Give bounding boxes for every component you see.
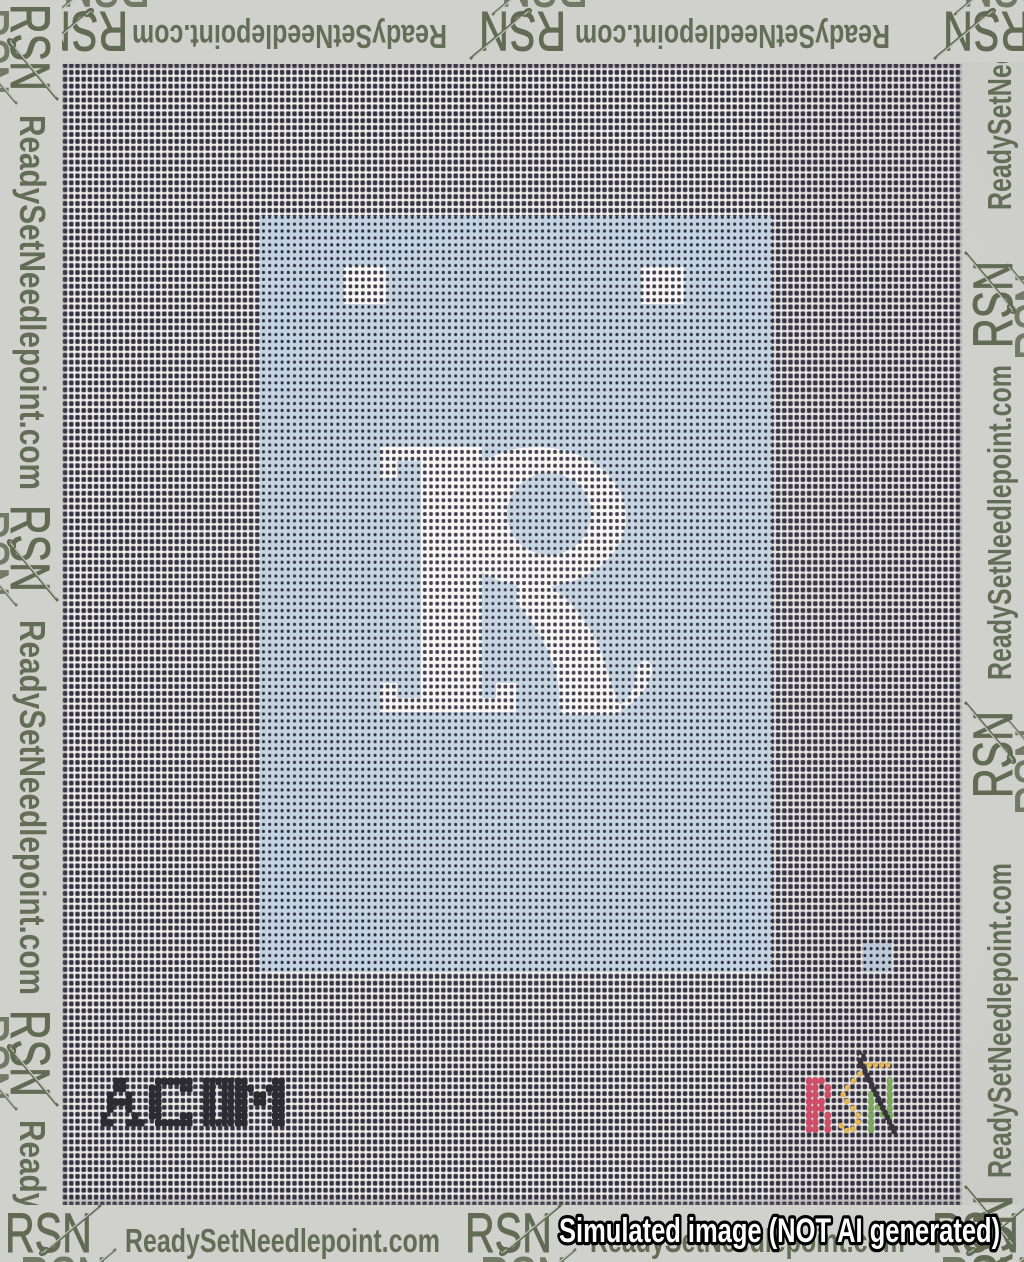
svg-text:Simulated image (NOT AI genera: Simulated image (NOT AI generated): [559, 1213, 1000, 1250]
